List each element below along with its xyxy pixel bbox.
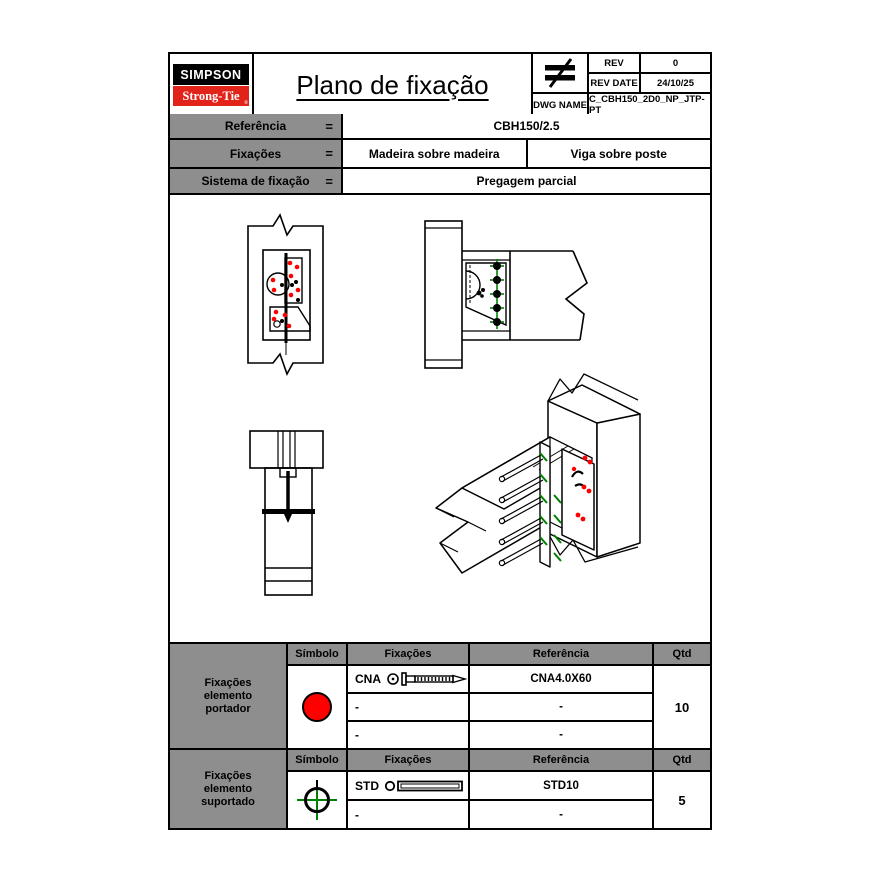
referencia-empty-cell: -: [470, 722, 652, 748]
referencia-empty-cell: -: [470, 801, 652, 828]
suportado-group-label: Fixaçõeselementosuportado: [170, 750, 286, 828]
suportado-symbol-cell: [288, 772, 346, 828]
col-header-qtd: Qtd: [654, 750, 710, 770]
referencia-std-cell: STD10: [470, 772, 652, 799]
col-header-fixacoes: Fixações: [348, 750, 468, 770]
page: { "header": { "brand": { "line1": "SIMPS…: [0, 0, 880, 880]
suportado-qtd-value: 5: [654, 772, 710, 828]
page-title: Plano de fixação: [254, 54, 531, 116]
revision-block: REV 0 REV DATE 24/10/25 DWG NAME C_CBH15…: [533, 54, 710, 116]
rev-label: REV: [589, 54, 639, 72]
sistema-label: Sistema de fixação=: [170, 169, 341, 193]
col-header-simbolo: Símbolo: [288, 750, 346, 770]
fixacao-cna-cell: CNA: [348, 666, 468, 692]
ring-shank-nail-icon: [386, 670, 468, 688]
fixacoes-value-1: Madeira sobre madeira: [343, 140, 526, 167]
drawing-area: [170, 195, 710, 642]
brand-strongtie: Strong-Tie®: [173, 86, 249, 106]
referencia-value: CBH150/2.5: [343, 114, 710, 138]
top-view-drawing: [250, 431, 323, 595]
portador-symbol-cell: [288, 666, 346, 748]
suportado-table: Fixaçõeselementosuportado Símbolo Fixaçõ…: [170, 750, 710, 828]
rev-date-value: 24/10/25: [641, 74, 710, 92]
fixacao-empty-cell: -: [348, 801, 468, 828]
brand-simpson: SIMPSON: [173, 64, 249, 85]
fixacao-std-cell: STD: [348, 772, 468, 799]
not-equal-icon: [533, 54, 587, 92]
portador-table: Fixaçõeselementoportador Símbolo Fixaçõe…: [170, 644, 710, 748]
rev-value: 0: [641, 54, 710, 72]
brand-logo: SIMPSON Strong-Tie®: [170, 54, 252, 116]
col-header-simbolo: Símbolo: [288, 644, 346, 664]
side-view-drawing: [425, 221, 587, 368]
rev-date-label: REV DATE: [589, 74, 639, 92]
isometric-view-drawing: [436, 374, 640, 573]
col-header-referencia: Referência: [470, 644, 652, 664]
iso-slot-plate: [540, 442, 550, 567]
dowel-icon: [384, 777, 466, 795]
fixacao-empty-cell: -: [348, 694, 468, 720]
table-row: Fixações= Madeira sobre madeira Viga sob…: [170, 140, 710, 167]
fixacao-empty-cell: -: [348, 722, 468, 748]
front-view-drawing: [248, 215, 323, 374]
referencia-cna-cell: CNA4.0X60: [470, 666, 652, 692]
col-header-qtd: Qtd: [654, 644, 710, 664]
referencia-label: Referência=: [170, 114, 341, 138]
fixacoes-label: Fixações=: [170, 140, 341, 167]
dwg-name-value: C_CBH150_2D0_NP_JTP-PT: [589, 94, 710, 116]
table-row: Sistema de fixação= Pregagem parcial: [170, 169, 710, 193]
fixacoes-value-2: Viga sobre poste: [528, 140, 711, 167]
col-header-referencia: Referência: [470, 750, 652, 770]
table-row: Referência= CBH150/2.5: [170, 114, 710, 138]
portador-group-label: Fixaçõeselementoportador: [170, 644, 286, 748]
dwg-name-label: DWG NAME: [533, 94, 587, 116]
drawing-sheet: SIMPSON Strong-Tie® Plano de fixação REV…: [168, 52, 712, 830]
crosshair-symbol: [295, 778, 339, 822]
portador-qtd-value: 10: [654, 666, 710, 748]
red-circle-symbol: [302, 692, 332, 722]
reference-table: Referência= CBH150/2.5 Fixações= Madeira…: [170, 114, 710, 193]
sistema-value: Pregagem parcial: [343, 169, 710, 193]
title-block: SIMPSON Strong-Tie® Plano de fixação REV…: [170, 54, 710, 112]
referencia-empty-cell: -: [470, 694, 652, 720]
col-header-fixacoes: Fixações: [348, 644, 468, 664]
registered-mark: ®: [244, 101, 248, 106]
